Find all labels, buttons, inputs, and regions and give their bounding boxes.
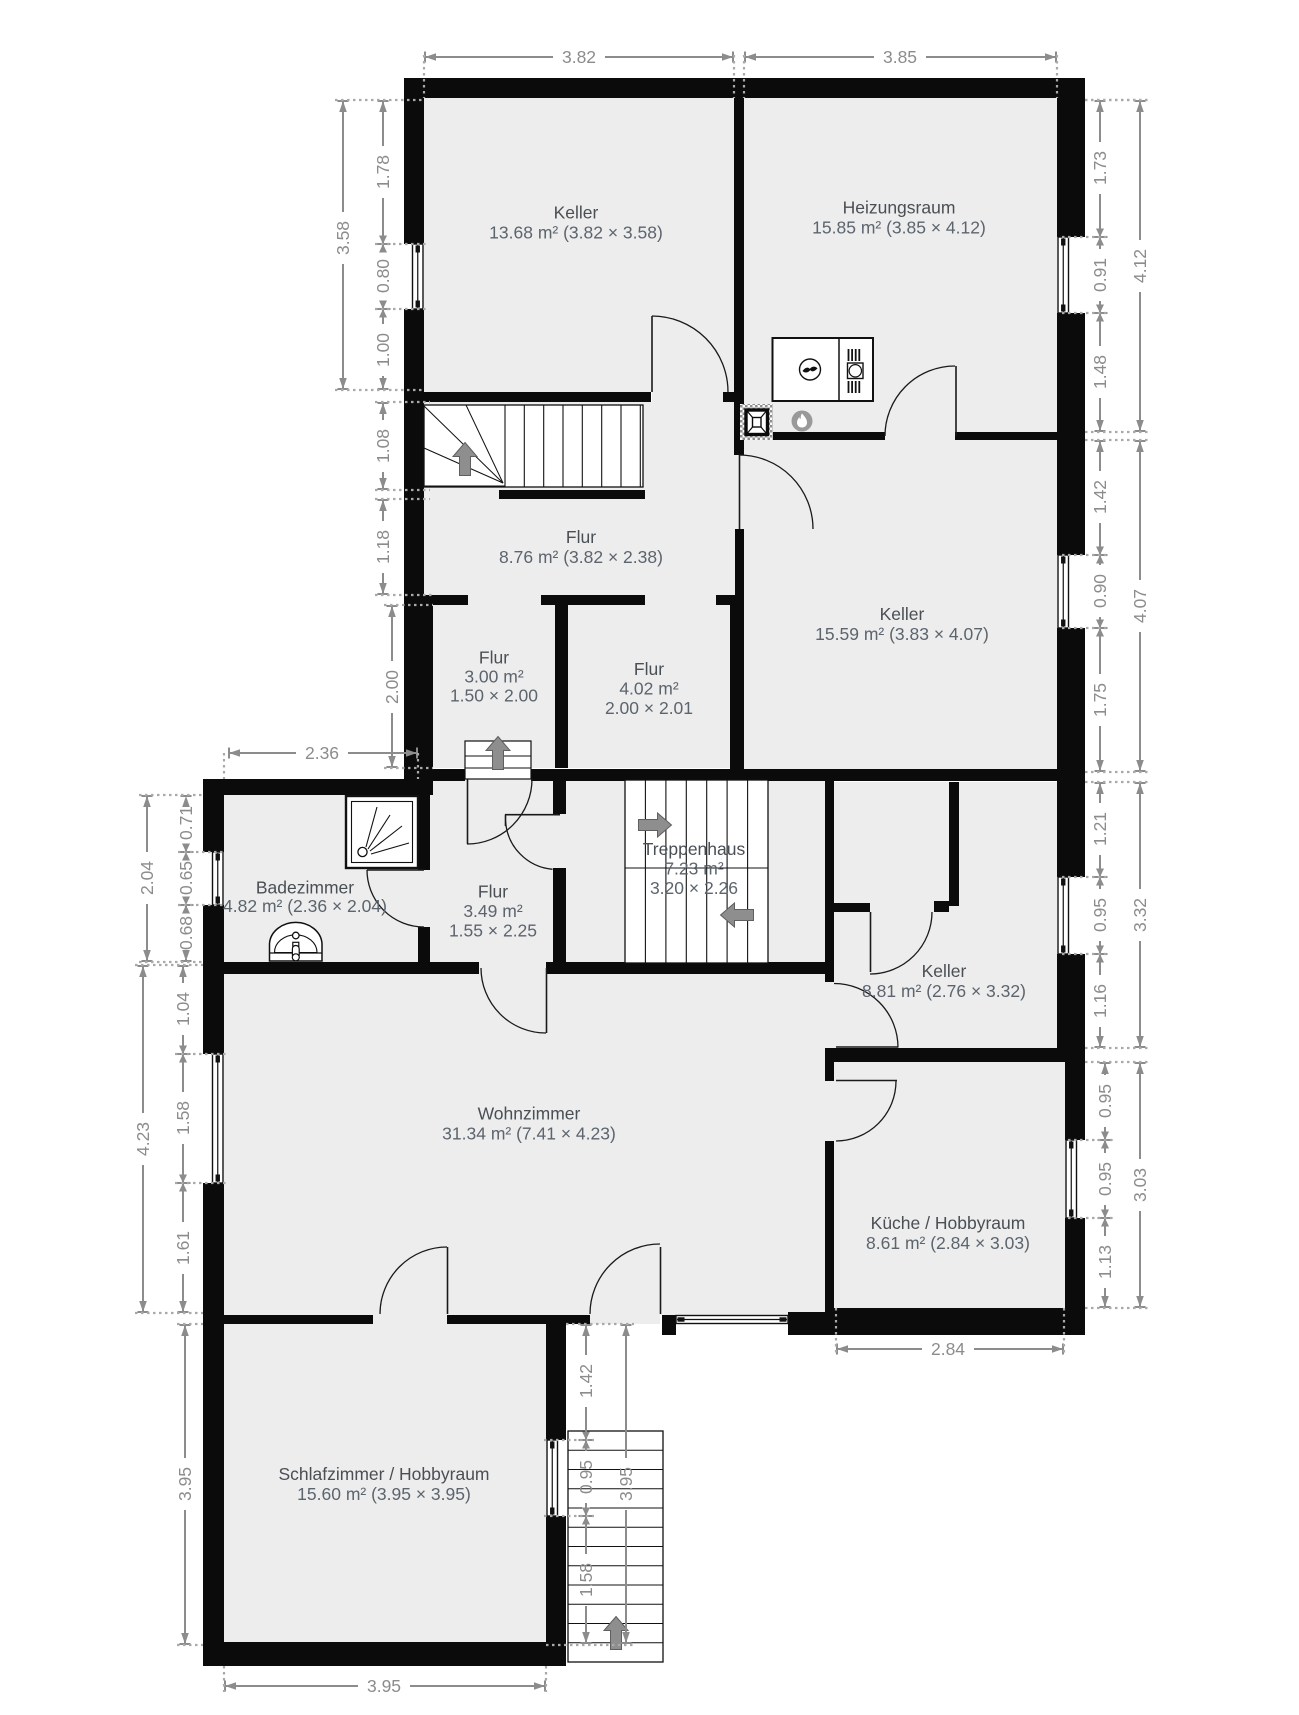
svg-text:31.34 m² (7.41 × 4.23): 31.34 m² (7.41 × 4.23): [442, 1124, 616, 1144]
svg-text:2.04: 2.04: [137, 861, 157, 895]
svg-text:Flur: Flur: [566, 527, 596, 547]
svg-text:1.61: 1.61: [173, 1231, 193, 1265]
svg-text:0.95: 0.95: [1090, 898, 1110, 932]
svg-text:0.91: 0.91: [1090, 258, 1110, 292]
svg-text:1.58: 1.58: [576, 1563, 596, 1597]
svg-text:1.21: 1.21: [1090, 812, 1110, 846]
svg-text:1.13: 1.13: [1095, 1245, 1115, 1279]
svg-text:1.18: 1.18: [373, 530, 393, 564]
svg-text:8.81 m² (2.76 × 3.32): 8.81 m² (2.76 × 3.32): [862, 981, 1026, 1001]
svg-text:3.82: 3.82: [562, 47, 596, 67]
svg-text:13.68 m² (3.82 × 3.58): 13.68 m² (3.82 × 3.58): [489, 223, 663, 243]
svg-text:4.12: 4.12: [1130, 249, 1150, 283]
svg-text:1.48: 1.48: [1090, 355, 1110, 389]
svg-text:0.90: 0.90: [1090, 574, 1110, 608]
svg-text:0.68: 0.68: [176, 916, 196, 950]
svg-text:4.23: 4.23: [133, 1122, 153, 1156]
svg-text:4.07: 4.07: [1130, 589, 1150, 623]
svg-text:Flur: Flur: [479, 648, 509, 668]
svg-text:8.61 m² (2.84 × 3.03): 8.61 m² (2.84 × 3.03): [866, 1233, 1030, 1253]
svg-text:2.36: 2.36: [305, 743, 339, 763]
svg-text:3.95: 3.95: [367, 1676, 401, 1696]
svg-text:Keller: Keller: [922, 961, 967, 981]
svg-text:1.75: 1.75: [1090, 683, 1110, 717]
svg-text:Keller: Keller: [554, 203, 599, 223]
svg-text:0.95: 0.95: [1095, 1084, 1115, 1118]
svg-text:3.95: 3.95: [616, 1467, 636, 1501]
svg-text:1.42: 1.42: [576, 1364, 596, 1398]
svg-text:Schlafzimmer / Hobbyraum: Schlafzimmer / Hobbyraum: [278, 1464, 489, 1484]
svg-text:7.23 m²: 7.23 m²: [664, 859, 723, 879]
svg-text:1.04: 1.04: [173, 992, 193, 1026]
svg-text:2.00 × 2.01: 2.00 × 2.01: [605, 698, 693, 718]
svg-text:2.84: 2.84: [931, 1339, 965, 1359]
svg-text:3.85: 3.85: [883, 47, 917, 67]
svg-text:3.20 × 2.26: 3.20 × 2.26: [650, 878, 738, 898]
svg-text:3.95: 3.95: [175, 1467, 195, 1501]
svg-text:Badezimmer: Badezimmer: [256, 878, 354, 898]
svg-text:2.00: 2.00: [382, 670, 402, 704]
svg-text:4.82 m² (2.36 × 2.04): 4.82 m² (2.36 × 2.04): [223, 896, 387, 916]
svg-text:3.32: 3.32: [1130, 898, 1150, 932]
svg-text:8.76 m² (3.82 × 2.38): 8.76 m² (3.82 × 2.38): [499, 547, 663, 567]
svg-text:1.42: 1.42: [1090, 480, 1110, 514]
svg-text:1.50 × 2.00: 1.50 × 2.00: [450, 686, 538, 706]
svg-text:1.08: 1.08: [373, 429, 393, 463]
svg-text:3.58: 3.58: [333, 221, 353, 255]
svg-text:1.16: 1.16: [1090, 984, 1110, 1018]
svg-text:15.59 m² (3.83 × 4.07): 15.59 m² (3.83 × 4.07): [815, 624, 989, 644]
svg-text:0.71: 0.71: [176, 806, 196, 840]
svg-text:15.60 m² (3.95 × 3.95): 15.60 m² (3.95 × 3.95): [297, 1484, 471, 1504]
svg-text:Treppenhaus: Treppenhaus: [643, 839, 746, 859]
svg-text:1.00: 1.00: [373, 333, 393, 367]
svg-text:Küche / Hobbyraum: Küche / Hobbyraum: [871, 1213, 1026, 1233]
svg-text:0.80: 0.80: [373, 259, 393, 293]
svg-text:1.78: 1.78: [373, 155, 393, 189]
svg-text:Wohnzimmer: Wohnzimmer: [478, 1104, 581, 1124]
svg-text:0.95: 0.95: [1095, 1162, 1115, 1196]
svg-text:3.49 m²: 3.49 m²: [463, 901, 522, 921]
svg-text:1.55 × 2.25: 1.55 × 2.25: [449, 921, 537, 941]
svg-text:3.03: 3.03: [1130, 1168, 1150, 1202]
svg-text:0.65: 0.65: [176, 861, 196, 895]
svg-text:Keller: Keller: [880, 604, 925, 624]
svg-text:4.02 m²: 4.02 m²: [619, 679, 678, 699]
svg-text:0.95: 0.95: [576, 1460, 596, 1494]
svg-text:1.58: 1.58: [173, 1101, 193, 1135]
svg-text:1.73: 1.73: [1090, 151, 1110, 185]
svg-text:Heizungsraum: Heizungsraum: [843, 198, 956, 218]
svg-text:3.00 m²: 3.00 m²: [464, 667, 523, 687]
svg-text:Flur: Flur: [478, 882, 508, 902]
svg-text:Flur: Flur: [634, 659, 664, 679]
svg-text:15.85 m² (3.85 × 4.12): 15.85 m² (3.85 × 4.12): [812, 218, 986, 238]
